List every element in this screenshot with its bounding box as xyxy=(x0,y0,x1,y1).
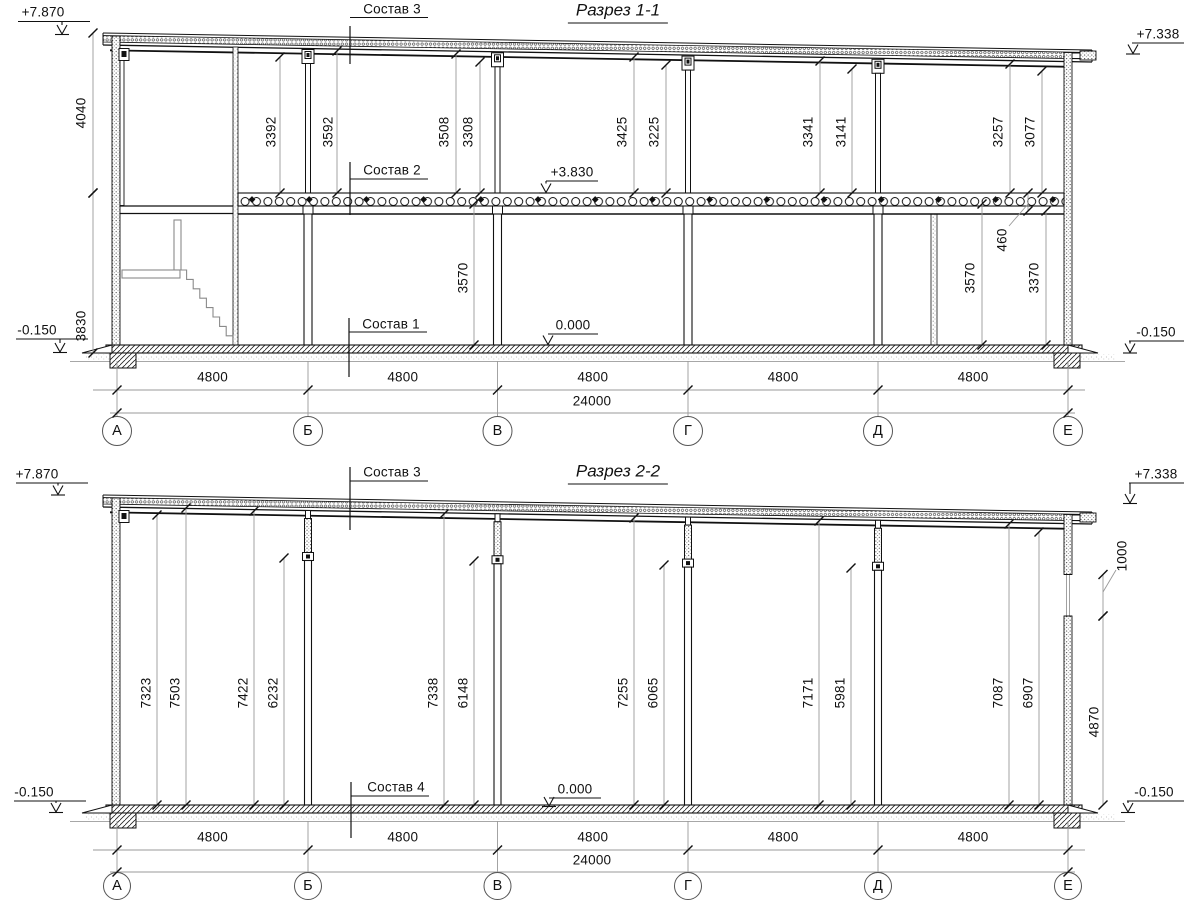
vertical-dim-label: 6232 xyxy=(266,678,280,709)
layer-label: Состав 3 xyxy=(363,465,421,479)
vertical-dim-label: 3508 xyxy=(437,117,451,148)
elevation-arrow-icon xyxy=(543,336,553,345)
vertical-dim-label: 3592 xyxy=(321,117,335,148)
axis-bubble-label: Г xyxy=(684,879,692,894)
bay-dim-label: 4800 xyxy=(577,830,608,844)
layer-label: Состав 4 xyxy=(367,780,425,794)
bay-dim-label: 4800 xyxy=(387,830,418,844)
elevation-label: 0.000 xyxy=(556,318,591,332)
building-sections-drawing xyxy=(0,0,1200,900)
axis-bubble-label: Г xyxy=(684,424,692,439)
vertical-dim-label: 4040 xyxy=(74,98,88,129)
axis-bubble-label: Б xyxy=(303,879,313,894)
vertical-dim-label: 3341 xyxy=(801,117,815,148)
section-title: Разрез 1-1 xyxy=(568,1,668,24)
vertical-dim-label: 3570 xyxy=(456,263,470,294)
vertical-dim-label: 3141 xyxy=(834,117,848,148)
bay-dim-label: 4800 xyxy=(197,370,228,384)
bay-dim-label: 4800 xyxy=(197,830,228,844)
elevation-label: +7.870 xyxy=(16,467,59,481)
vertical-dim-label: 3077 xyxy=(1023,117,1037,148)
elevation-arrow-icon xyxy=(53,486,63,495)
elevation-label: +7.338 xyxy=(1135,467,1178,481)
elevation-label: 0.000 xyxy=(558,782,593,796)
elevation-arrow-icon xyxy=(1123,803,1133,812)
elevation-label: +7.338 xyxy=(1137,27,1180,41)
elevation-arrow-icon xyxy=(1125,494,1135,503)
vertical-dim-label: 3392 xyxy=(264,117,278,148)
bay-dim-label: 4800 xyxy=(768,830,799,844)
bay-dim-label: 4800 xyxy=(958,830,989,844)
total-dim-label: 24000 xyxy=(573,853,612,867)
vertical-dim-label: 3570 xyxy=(963,263,977,294)
axis-bubble-label: Е xyxy=(1063,879,1073,894)
elevation-arrow-icon xyxy=(51,803,61,812)
axis-bubble-label: А xyxy=(112,424,122,439)
bay-dim-label: 4800 xyxy=(387,370,418,384)
elevation-label: +3.830 xyxy=(551,165,594,179)
elevation-label: -0.150 xyxy=(1134,785,1173,799)
elevation-label: -0.150 xyxy=(14,785,53,799)
vertical-dim-label: 6065 xyxy=(646,678,660,709)
vertical-dim-label: 7255 xyxy=(616,678,630,709)
vertical-dim-label: 7503 xyxy=(168,678,182,709)
elevation-arrow-icon xyxy=(57,25,67,34)
elevation-label: +7.870 xyxy=(22,5,65,19)
vertical-dim-label: 7422 xyxy=(236,678,250,709)
elevation-label: -0.150 xyxy=(1136,325,1175,339)
vertical-dim-label: 4870 xyxy=(1087,707,1101,738)
staircase xyxy=(122,220,233,345)
vertical-dim-label: 3370 xyxy=(1027,263,1041,294)
vertical-dim-label: 460 xyxy=(995,228,1009,251)
axis-bubble-label: Д xyxy=(873,424,883,439)
elevation-arrow-icon xyxy=(1125,344,1135,353)
vertical-dim-label: 5981 xyxy=(833,678,847,709)
layer-label: Состав 2 xyxy=(363,163,421,177)
axis-bubble-label: Д xyxy=(873,879,883,894)
axis-bubble-label: А xyxy=(112,879,122,894)
axis-bubble-label: Б xyxy=(303,424,313,439)
vertical-dim-label: 6148 xyxy=(456,678,470,709)
vertical-dim-label: 3257 xyxy=(991,117,1005,148)
elevation-arrow-icon xyxy=(541,184,551,193)
bay-dim-label: 4800 xyxy=(768,370,799,384)
layer-label: Состав 3 xyxy=(363,2,421,16)
elevation-arrow-icon xyxy=(1128,45,1138,54)
section-title: Разрез 2-2 xyxy=(568,462,668,485)
vertical-dim-label: 7171 xyxy=(801,678,815,709)
bay-dim-label: 4800 xyxy=(577,370,608,384)
vertical-dim-label: 3308 xyxy=(461,117,475,148)
elevation-label: -0.150 xyxy=(17,323,56,337)
total-dim-label: 24000 xyxy=(573,394,612,408)
section-2-structure xyxy=(70,495,1125,828)
dim-line xyxy=(1009,204,1028,226)
vertical-dim-label: 3225 xyxy=(647,117,661,148)
bay-dim-label: 4800 xyxy=(958,370,989,384)
drawing-sheet: 4040383033923592350833083425322533413141… xyxy=(0,0,1200,900)
elevation-arrow-icon xyxy=(55,343,65,352)
vertical-dim-label: 1000 xyxy=(1115,541,1129,572)
vertical-dim-label: 3425 xyxy=(615,117,629,148)
vertical-dim-label: 3830 xyxy=(74,311,88,342)
axis-bubble-label: В xyxy=(493,424,503,439)
axis-bubble-label: Е xyxy=(1063,424,1073,439)
section-1-structure xyxy=(70,33,1125,368)
vertical-dim-label: 7323 xyxy=(139,678,153,709)
vertical-dim-label: 7087 xyxy=(991,678,1005,709)
vertical-dim-label: 6907 xyxy=(1021,678,1035,709)
vertical-dim-label: 7338 xyxy=(426,678,440,709)
axis-bubble-label: В xyxy=(493,879,503,894)
layer-label: Состав 1 xyxy=(362,317,420,331)
